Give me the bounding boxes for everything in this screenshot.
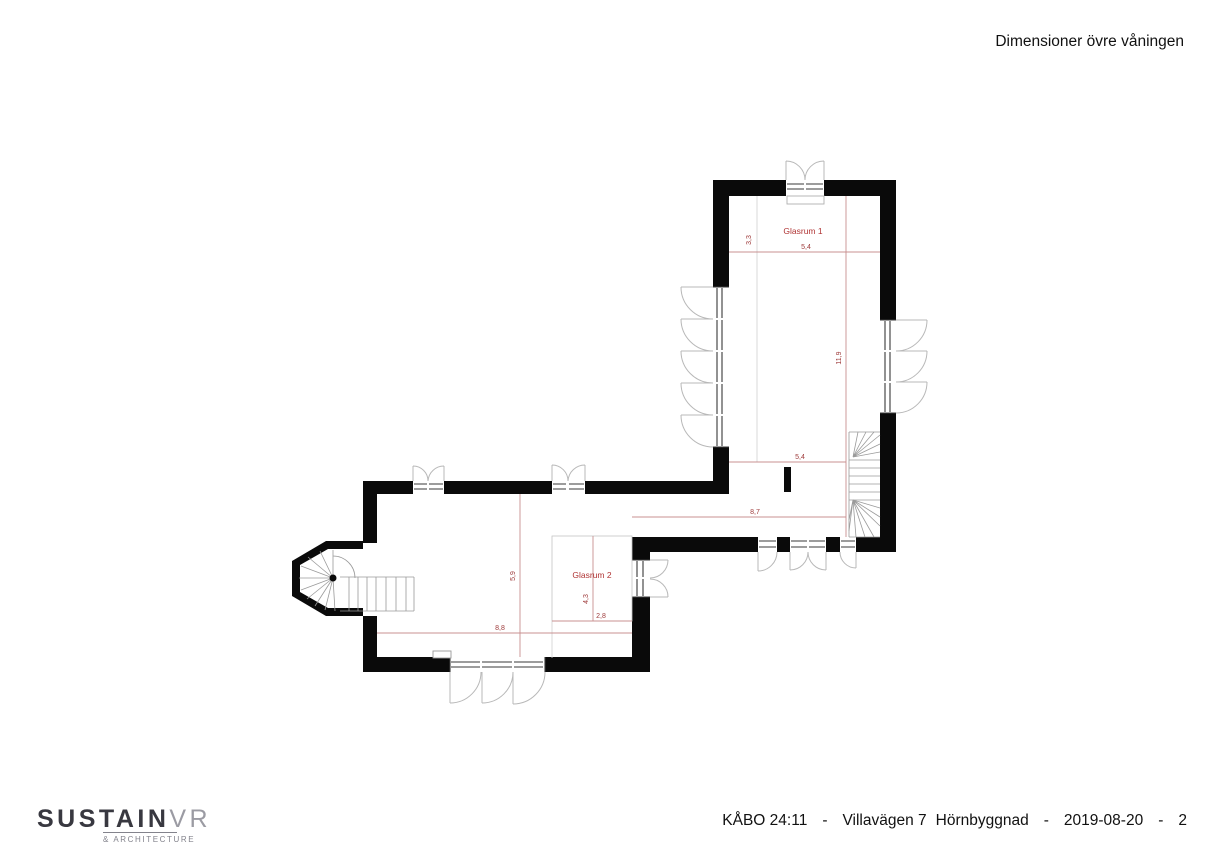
dimension-label-cross-span: 8,7 — [750, 509, 760, 516]
project-id: KÅBO 24:11 — [722, 812, 807, 830]
separator: - — [822, 812, 827, 830]
street: Villavägen 7 — [842, 812, 926, 830]
page-number: 2 — [1178, 812, 1187, 830]
folding-doors-east-facade — [896, 320, 927, 413]
french-door-west-2 — [552, 465, 585, 481]
french-door-north — [786, 161, 824, 180]
dimension-label-g1-top-offset: 3,3 — [746, 235, 753, 245]
room-label-glasrum1: Glasrum 1 — [783, 226, 822, 236]
company-logo: SUSTAINVR & ARCHITECTURE — [37, 806, 211, 844]
dimension-label-g1-top-width: 5,4 — [801, 244, 811, 251]
floor-plan: Glasrum 1 Glasrum 2 5,4 3,3 11,9 5,4 8,7… — [0, 0, 1220, 865]
building: Hörnbyggnad — [936, 812, 1029, 830]
dimension-label-g2-depth: 4,3 — [583, 594, 590, 604]
logo-wordmark: SUSTAINVR — [37, 806, 211, 832]
glazing-lines — [414, 184, 896, 672]
folding-doors-west-facade — [681, 287, 713, 447]
logo-secondary: VR — [169, 805, 211, 833]
room-label-glasrum2: Glasrum 2 — [572, 570, 611, 580]
dimension-lines — [377, 196, 880, 657]
dimension-label-west-depth: 5,9 — [510, 571, 517, 581]
french-door-west-1 — [413, 466, 444, 481]
dimension-label-g2-width: 2,8 — [596, 613, 606, 620]
logo-primary: SUSTAIN — [37, 805, 169, 833]
dimension-label-g1-lower-width: 5,4 — [795, 454, 805, 461]
window-doors-glasrum2 — [650, 560, 668, 597]
dimension-label-g1-length: 11,9 — [836, 351, 843, 364]
logo-tagline: & ARCHITECTURE — [103, 832, 177, 844]
patio-doors-southwest — [450, 672, 545, 704]
hearth-detail — [433, 651, 451, 658]
separator: - — [1158, 812, 1163, 830]
dimension-label-west-width: 8,8 — [495, 625, 505, 632]
terrace-doors-south — [758, 552, 856, 571]
stair-newel-post — [330, 575, 337, 582]
pillar — [784, 467, 791, 492]
drawing-date: 2019-08-20 — [1064, 812, 1143, 830]
door-sill — [787, 196, 824, 204]
project-address: Villavägen 7 Hörnbyggnad — [842, 812, 1028, 830]
tower-bay — [292, 541, 363, 616]
title-block: KÅBO 24:11 - Villavägen 7 Hörnbyggnad - … — [722, 812, 1187, 830]
drawing-sheet: Dimensioner övre våningen — [0, 0, 1220, 865]
west-wing-walls — [363, 481, 729, 672]
main-staircase — [849, 432, 880, 537]
separator: - — [1044, 812, 1049, 830]
north-wing-walls — [632, 180, 896, 552]
